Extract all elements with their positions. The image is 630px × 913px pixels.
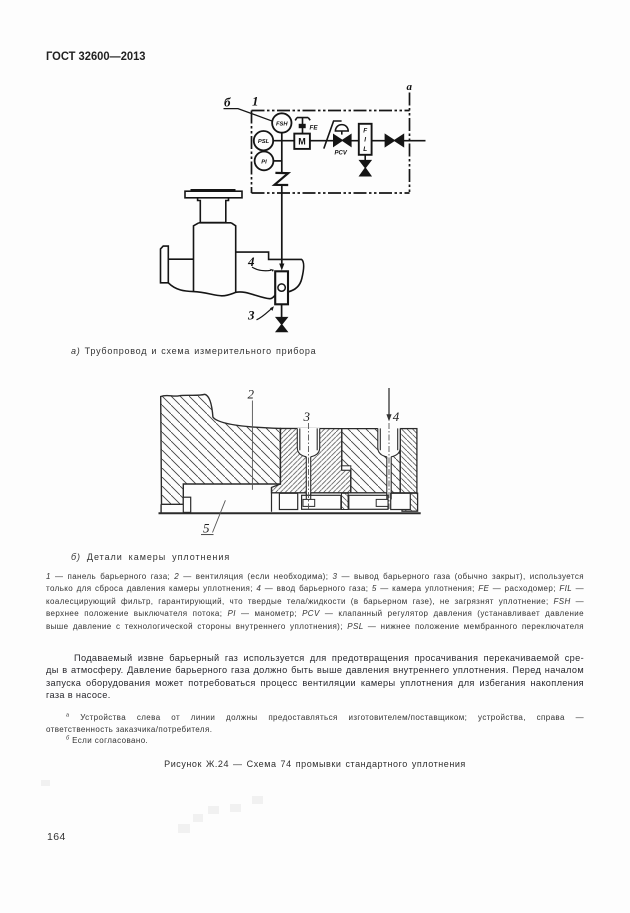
svg-text:2: 2 bbox=[248, 387, 255, 402]
svg-text:M: M bbox=[298, 137, 306, 147]
svg-text:L: L bbox=[363, 146, 367, 153]
svg-text:б: б bbox=[224, 95, 231, 110]
svg-text:PSL: PSL bbox=[258, 139, 270, 145]
svg-text:а: а bbox=[407, 81, 413, 93]
svg-text:I: I bbox=[364, 137, 366, 144]
svg-text:1: 1 bbox=[252, 94, 259, 109]
svg-text:4: 4 bbox=[247, 254, 255, 269]
svg-text:FE: FE bbox=[310, 125, 319, 132]
svg-text:PCV: PCV bbox=[335, 150, 348, 156]
svg-text:PI: PI bbox=[261, 159, 267, 165]
svg-text:FSH: FSH bbox=[276, 121, 288, 127]
svg-text:3: 3 bbox=[303, 409, 311, 424]
svg-text:3: 3 bbox=[247, 308, 255, 323]
svg-text:5: 5 bbox=[203, 521, 210, 536]
svg-text:F: F bbox=[363, 127, 368, 134]
svg-text:4: 4 bbox=[393, 409, 400, 424]
